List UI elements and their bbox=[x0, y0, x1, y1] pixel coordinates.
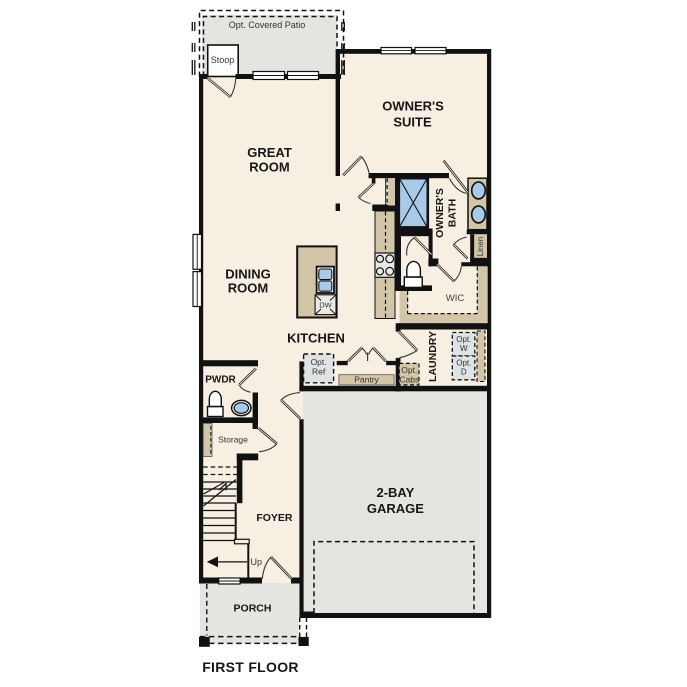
svg-text:2-BAY: 2-BAY bbox=[376, 485, 414, 500]
svg-text:OWNER'S: OWNER'S bbox=[434, 188, 446, 238]
svg-text:Linen: Linen bbox=[476, 237, 485, 257]
svg-text:Opt.: Opt. bbox=[456, 335, 471, 344]
svg-text:ROOM: ROOM bbox=[228, 281, 268, 296]
svg-text:OWNER'S: OWNER'S bbox=[382, 98, 444, 113]
svg-text:WIC: WIC bbox=[446, 293, 465, 304]
svg-text:Stoop: Stoop bbox=[211, 55, 235, 65]
svg-text:Up: Up bbox=[251, 557, 263, 567]
svg-text:PORCH: PORCH bbox=[234, 603, 272, 615]
svg-text:Cabs: Cabs bbox=[399, 374, 419, 384]
svg-text:SUITE: SUITE bbox=[393, 114, 432, 129]
svg-text:Ref: Ref bbox=[312, 366, 326, 376]
svg-text:FOYER: FOYER bbox=[256, 512, 293, 524]
svg-text:Opt.: Opt. bbox=[311, 357, 327, 367]
svg-text:DINING: DINING bbox=[225, 267, 271, 282]
svg-text:D: D bbox=[461, 367, 467, 376]
svg-text:Opt.: Opt. bbox=[401, 365, 417, 375]
svg-text:Opt.: Opt. bbox=[456, 358, 471, 367]
svg-text:Pantry: Pantry bbox=[354, 375, 379, 385]
svg-text:BATH: BATH bbox=[447, 199, 459, 227]
svg-text:Opt. Covered Patio: Opt. Covered Patio bbox=[229, 20, 306, 30]
svg-text:ROOM: ROOM bbox=[249, 160, 289, 175]
svg-text:DW: DW bbox=[319, 301, 332, 310]
svg-text:FIRST FLOOR: FIRST FLOOR bbox=[202, 659, 299, 675]
svg-text:LAUNDRY: LAUNDRY bbox=[427, 331, 439, 382]
svg-text:GARAGE: GARAGE bbox=[367, 501, 424, 516]
svg-text:GREAT: GREAT bbox=[247, 145, 292, 160]
svg-text:PWDR: PWDR bbox=[205, 374, 236, 385]
svg-text:W: W bbox=[460, 344, 468, 353]
svg-text:KITCHEN: KITCHEN bbox=[287, 331, 345, 346]
svg-text:Storage: Storage bbox=[218, 434, 248, 444]
